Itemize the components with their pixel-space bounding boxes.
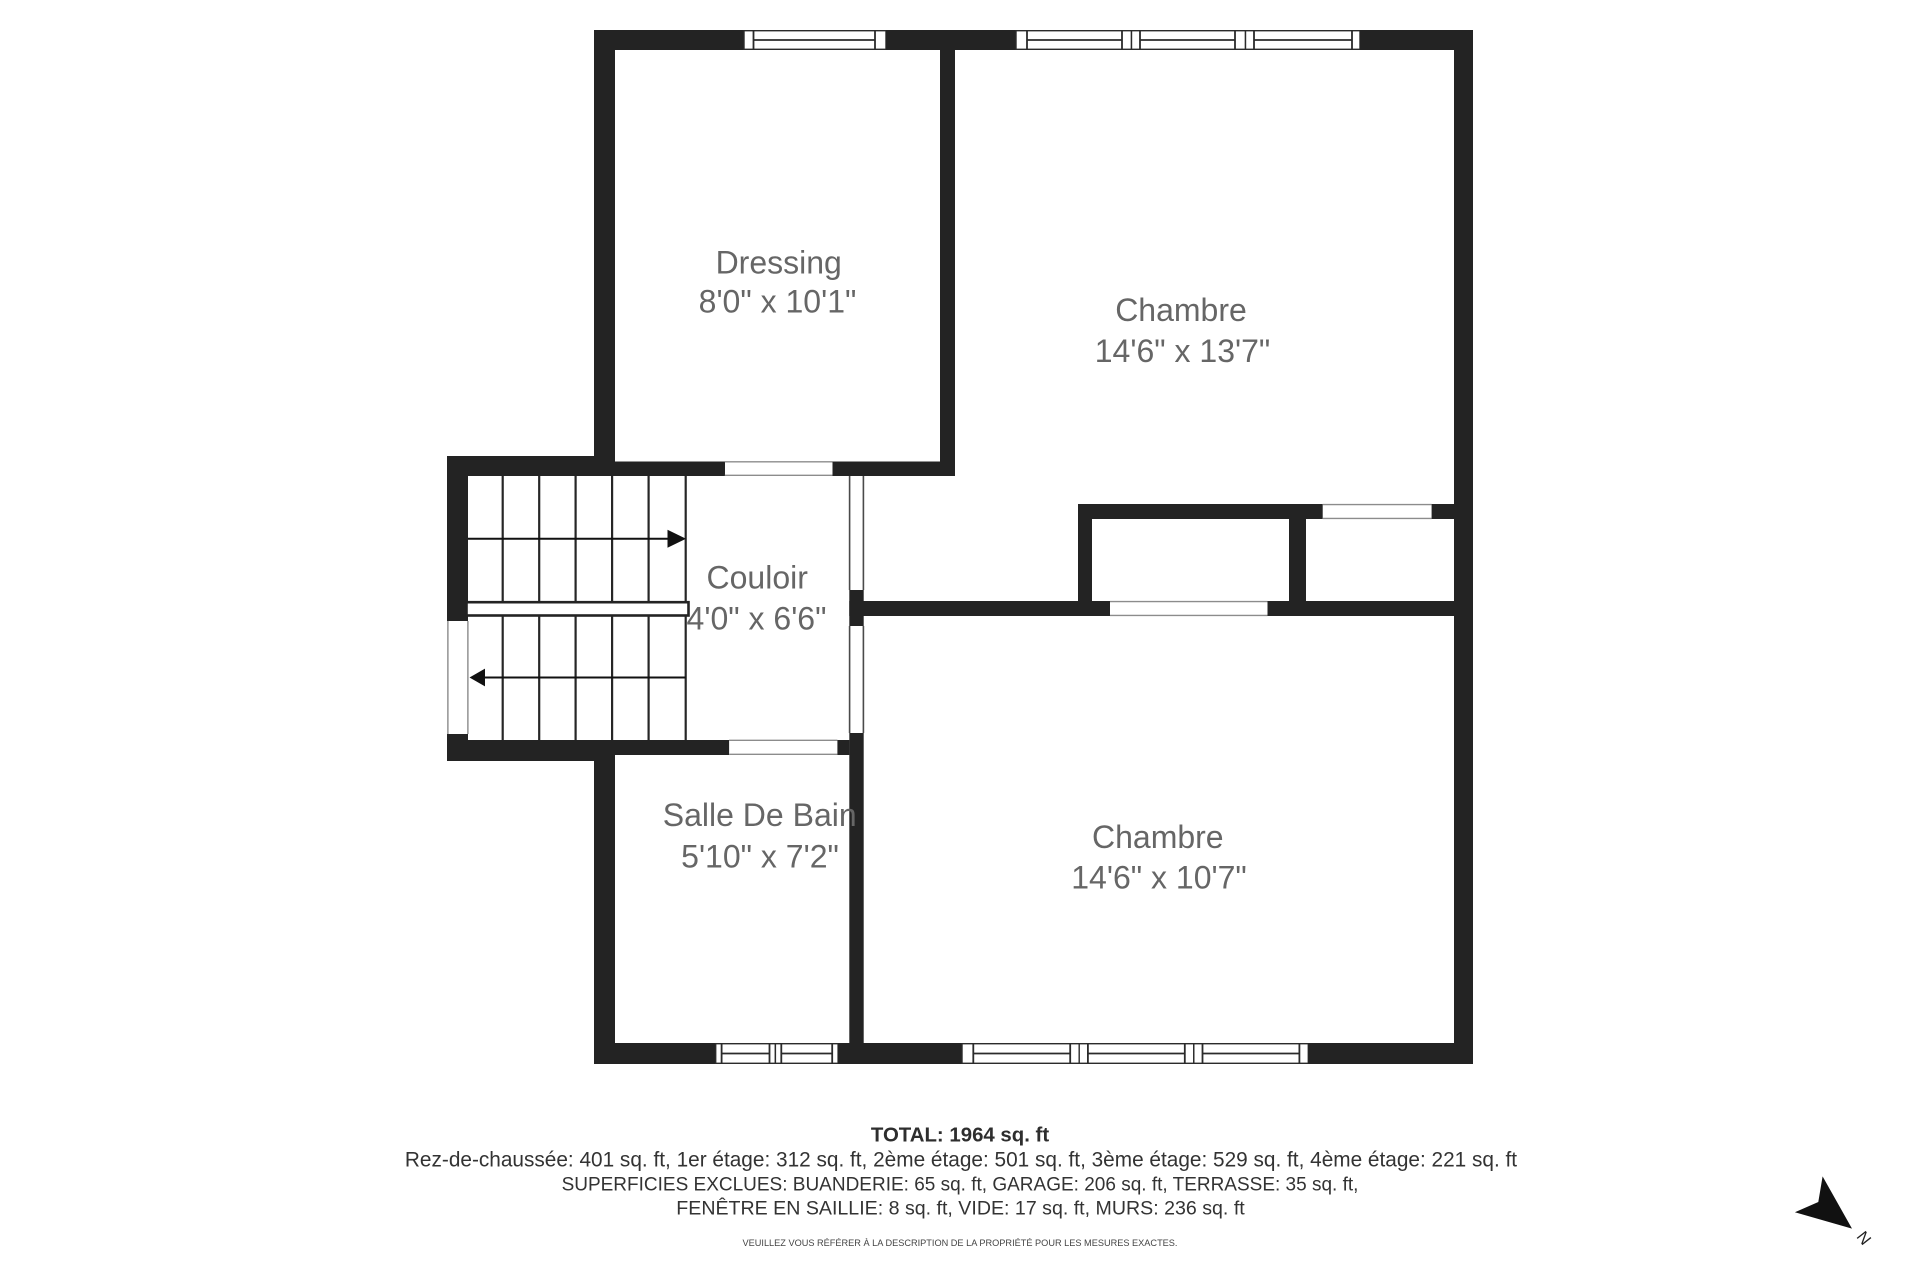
svg-text:5'10" x 7'2": 5'10" x 7'2" <box>681 839 839 875</box>
svg-text:Chambre: Chambre <box>1092 819 1224 855</box>
svg-text:Salle De Bain: Salle De Bain <box>663 797 857 833</box>
svg-text:Chambre: Chambre <box>1115 292 1247 328</box>
svg-text:14'6" x 10'7": 14'6" x 10'7" <box>1071 860 1247 896</box>
svg-text:Rez-de-chaussée: 401 sq. ft, 1: Rez-de-chaussée: 401 sq. ft, 1er étage: … <box>405 1148 1517 1171</box>
svg-text:8'0" x 10'1": 8'0" x 10'1" <box>699 284 857 320</box>
svg-text:Dressing: Dressing <box>716 245 842 281</box>
svg-text:VEUILLEZ VOUS RÉFÉRER À LA DES: VEUILLEZ VOUS RÉFÉRER À LA DESCRIPTION D… <box>743 1238 1178 1248</box>
svg-text:TOTAL: 1964 sq. ft: TOTAL: 1964 sq. ft <box>871 1125 1049 1147</box>
svg-text:Couloir: Couloir <box>707 560 809 596</box>
svg-text:SUPERFICIES EXCLUES: BUANDERIE: SUPERFICIES EXCLUES: BUANDERIE: 65 sq. f… <box>562 1174 1359 1195</box>
svg-text:4'0" x 6'6": 4'0" x 6'6" <box>687 600 827 636</box>
svg-text:FENÊTRE EN SAILLIE: 8 sq. ft,: FENÊTRE EN SAILLIE: 8 sq. ft, VIDE: 17 s… <box>676 1196 1245 1219</box>
svg-text:14'6" x 13'7": 14'6" x 13'7" <box>1095 333 1271 369</box>
